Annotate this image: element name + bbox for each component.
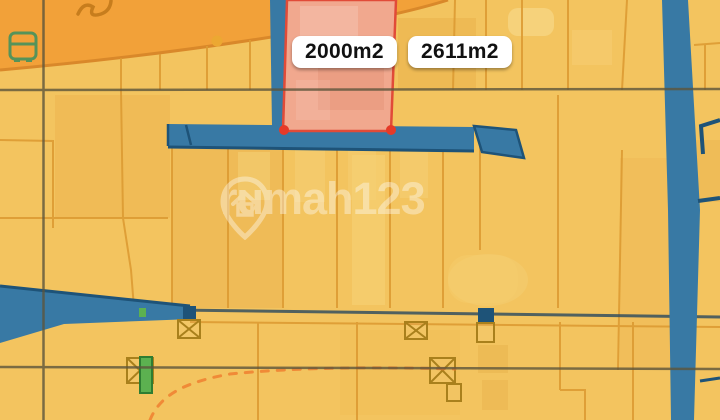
map-canvas[interactable]: 2000m2 2611m2 rumah123 — [0, 0, 720, 420]
crossing-marker-icon — [430, 358, 455, 383]
parcel-vertex-dot[interactable] — [279, 125, 289, 135]
area-label-text: 2611m2 — [421, 40, 499, 63]
crossing-marker-icon — [178, 320, 200, 338]
green-speck — [139, 308, 146, 317]
green-post-marker — [140, 357, 152, 393]
orange-poi-dot — [212, 36, 223, 47]
parcel-vertex-dot[interactable] — [386, 125, 396, 135]
crossing-marker-icon — [405, 322, 427, 339]
area-label-2000m2[interactable]: 2000m2 — [292, 36, 397, 68]
area-label-2611m2[interactable]: 2611m2 — [408, 36, 512, 68]
area-label-text: 2000m2 — [305, 40, 384, 63]
